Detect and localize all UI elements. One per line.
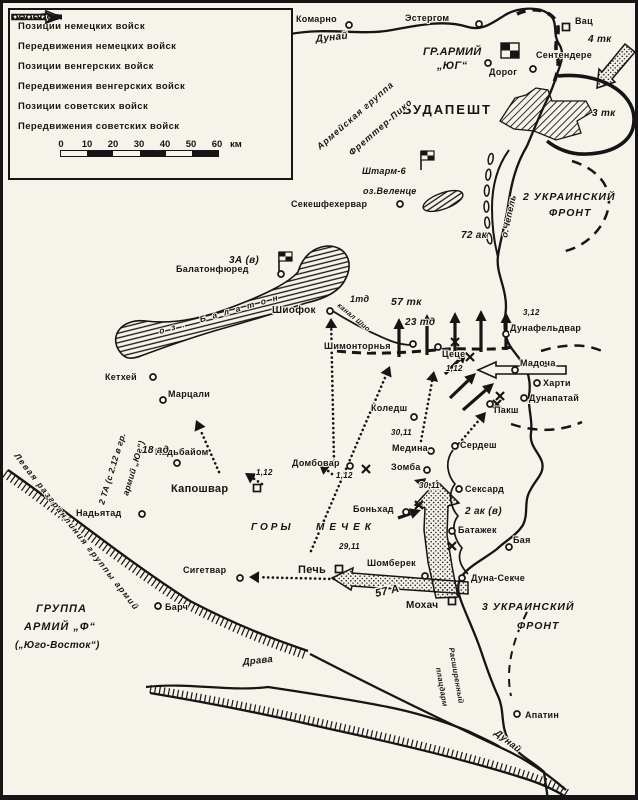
drava-boundary-band-tick bbox=[164, 687, 165, 695]
town-marker bbox=[410, 341, 416, 347]
soviet-movement-arrow bbox=[327, 470, 332, 474]
army-group-boundary-band-tick bbox=[36, 494, 41, 501]
army-group-boundary-band-tick bbox=[136, 568, 141, 575]
map-label: 57 тк bbox=[391, 296, 422, 308]
army-group-boundary-band-tick bbox=[294, 647, 297, 655]
soviet-movement-arrowhead bbox=[381, 366, 392, 378]
german-movement-arrowhead bbox=[394, 318, 405, 329]
drava-boundary-band-tick bbox=[200, 694, 201, 702]
scale-tick: 40 bbox=[152, 139, 178, 150]
drava-boundary-band-tick bbox=[308, 716, 310, 724]
town-marker bbox=[456, 486, 462, 492]
town-label: Апатин bbox=[525, 710, 559, 720]
army-group-boundary-band-tick bbox=[10, 475, 15, 482]
army-group-boundary-band-tick bbox=[33, 491, 38, 498]
town-marker bbox=[449, 528, 455, 534]
drava-boundary-band-tick bbox=[222, 698, 224, 706]
army-group-boundary-band-tick bbox=[224, 620, 228, 628]
german-movement-arrowhead bbox=[476, 310, 487, 321]
town-label: Шиофок bbox=[272, 304, 317, 316]
map-label: ФРОНТ bbox=[549, 207, 592, 219]
army-group-boundary-band-tick bbox=[241, 627, 245, 635]
army-group-boundary-band-tick bbox=[125, 560, 130, 567]
town-marker bbox=[346, 22, 352, 28]
town-marker bbox=[160, 397, 166, 403]
drava-boundary-band-tick bbox=[218, 697, 220, 705]
drava-boundary-band-tick bbox=[375, 731, 377, 739]
army-group-boundary-band-tick bbox=[7, 473, 12, 480]
army-group-boundary-band-tick bbox=[140, 571, 145, 578]
legend-label: Передвижения советских войск bbox=[18, 121, 179, 132]
soviet-position-pill bbox=[485, 169, 491, 181]
drava-boundary-band-tick bbox=[491, 761, 493, 769]
map-legend: Позиции немецких войск Передвижения неме… bbox=[8, 8, 293, 180]
hq-flag-icon-shtarm6 bbox=[428, 156, 435, 161]
drava-boundary-band-tick bbox=[321, 719, 323, 727]
town-marker bbox=[459, 575, 465, 581]
legend-label: Позиции советских войск bbox=[18, 101, 148, 112]
army-group-boundary-band-tick bbox=[254, 632, 257, 640]
army-group-boundary-band-tick bbox=[21, 483, 26, 490]
map-label: 1,12 bbox=[256, 468, 273, 477]
german-movement-arrowhead bbox=[409, 508, 421, 518]
army-group-boundary-band-tick bbox=[276, 641, 279, 649]
town-marker bbox=[254, 485, 261, 492]
army-group-boundary-band-tick bbox=[159, 584, 164, 591]
army-group-boundary-band-tick bbox=[25, 486, 30, 493]
army-group-boundary-band-tick bbox=[220, 618, 224, 626]
drava-boundary-band-tick bbox=[250, 704, 252, 712]
map-label: плацдарм bbox=[434, 667, 450, 708]
soviet-movement-arrowhead bbox=[249, 571, 259, 583]
drava-boundary-band-tick bbox=[281, 710, 283, 718]
drava-boundary-band-tick bbox=[357, 727, 359, 735]
german-movement-arrowhead bbox=[450, 312, 461, 323]
drava-boundary-band-tick bbox=[460, 752, 462, 760]
town-label: Шимонторнья bbox=[324, 341, 391, 351]
army-group-boundary-band-tick bbox=[95, 538, 100, 545]
map-label: 1,12 bbox=[336, 471, 353, 480]
drava-boundary-band-tick bbox=[526, 771, 529, 779]
drava-boundary-band-tick bbox=[204, 695, 205, 703]
legend-label: Передвижения венгерских войск bbox=[18, 81, 185, 92]
soviet-movement-arrow bbox=[259, 577, 334, 579]
army-group-boundary-band-tick bbox=[148, 576, 153, 583]
budapest-city-area bbox=[500, 88, 592, 140]
town-label: Шомберек bbox=[367, 558, 416, 568]
drava-boundary-band-tick bbox=[335, 722, 337, 730]
army-group-boundary-band-tick bbox=[29, 489, 34, 496]
town-marker bbox=[397, 201, 403, 207]
drava-boundary-band-tick bbox=[416, 741, 418, 749]
town-label: Дунапатай bbox=[529, 393, 579, 403]
town-marker bbox=[428, 448, 434, 454]
soviet-position-pill bbox=[484, 201, 489, 212]
scale-tick: 30 bbox=[126, 139, 152, 150]
drava-boundary-band-tick bbox=[411, 740, 413, 748]
hq-flag-icon-shtarm6 bbox=[421, 151, 428, 156]
drava-boundary-band-tick bbox=[173, 689, 174, 697]
map-label: 3 тк bbox=[592, 108, 616, 119]
map-label: ФРОНТ bbox=[517, 620, 560, 632]
town-marker bbox=[411, 414, 417, 420]
drava-boundary-band-tick bbox=[438, 746, 440, 754]
drava-boundary-band-tick bbox=[366, 729, 368, 737]
town-label: Капошвар bbox=[171, 483, 228, 495]
drava-boundary-band-tick bbox=[393, 735, 395, 743]
army-group-boundary-band-tick bbox=[203, 610, 207, 618]
army-group-boundary-band-tick bbox=[106, 547, 111, 554]
town-marker bbox=[452, 443, 458, 449]
scale-tick: 10 bbox=[74, 139, 100, 150]
town-label: Кетхей bbox=[105, 372, 137, 382]
town-marker bbox=[237, 575, 243, 581]
drava-boundary-band-tick bbox=[290, 712, 292, 720]
town-label: Мадоча bbox=[520, 358, 556, 368]
front-dashed-arc bbox=[541, 346, 604, 353]
army-group-boundary-band-tick bbox=[289, 645, 292, 653]
map-label: 29,11 bbox=[338, 542, 360, 551]
drava-boundary-band-tick bbox=[326, 720, 328, 728]
army-group-boundary-band-tick bbox=[216, 616, 220, 624]
town-label: Боньхад bbox=[353, 504, 394, 514]
scale-tick: 50 bbox=[178, 139, 204, 150]
scale-tick-labels: 0 10 20 30 40 50 60 км bbox=[48, 139, 260, 150]
drava-boundary-band-tick bbox=[429, 744, 431, 752]
army-group-boundary-band-tick bbox=[298, 649, 301, 657]
army-group-boundary-band-tick bbox=[174, 594, 179, 602]
drava-boundary-band-tick bbox=[299, 714, 301, 722]
scale-tick: 60 bbox=[204, 139, 230, 150]
town-marker bbox=[150, 374, 156, 380]
town-label: Коледш bbox=[371, 403, 407, 413]
drava-boundary-band-tick bbox=[240, 702, 242, 710]
drava-boundary-band-tick bbox=[535, 775, 538, 782]
map-label: оз.Веленце bbox=[363, 186, 417, 196]
army-group-boundary-band-tick bbox=[99, 541, 104, 548]
army-group-boundary-band-tick bbox=[267, 638, 270, 646]
drava-boundary-band-tick bbox=[442, 747, 444, 755]
army-group-boundary-band-tick bbox=[117, 555, 122, 562]
army-group-boundary-band-tick bbox=[167, 589, 172, 596]
map-page: КомарноЭстергомВацСентендереДорогСекешфе… bbox=[0, 0, 638, 800]
map-label: 3,12 bbox=[523, 308, 540, 317]
army-group-boundary-band-tick bbox=[212, 614, 216, 622]
drava-boundary-band-tick bbox=[500, 763, 502, 771]
town-label: Цеце bbox=[442, 349, 465, 359]
drava-boundary-band-tick bbox=[522, 770, 524, 778]
legend-label: Позиции венгерских войск bbox=[18, 61, 154, 72]
drava-boundary-band-tick bbox=[398, 736, 400, 744]
drava-boundary-band-tick bbox=[548, 780, 551, 787]
hungarian-front-danube-bend bbox=[517, 10, 558, 85]
army-group-boundary-band-tick bbox=[195, 606, 199, 614]
town-label: Дунафельдвар bbox=[510, 323, 581, 333]
map-label: Армейская группа bbox=[314, 79, 396, 152]
drava-boundary-band-tick bbox=[236, 701, 238, 709]
drava-boundary-band-tick bbox=[186, 691, 187, 699]
soviet-position-pill bbox=[487, 153, 494, 165]
drava-boundary-band-tick bbox=[389, 734, 391, 742]
map-label: 3А (в) bbox=[229, 255, 259, 266]
drava-boundary-band-tick bbox=[482, 758, 484, 766]
town-label: Секешфехервар bbox=[291, 199, 367, 209]
german-movement-arrow bbox=[463, 390, 486, 410]
army-group-boundary-band-tick bbox=[129, 563, 134, 570]
drava-boundary-band-tick bbox=[487, 759, 489, 767]
army-group-boundary-band-tick bbox=[155, 581, 160, 588]
town-marker bbox=[534, 380, 540, 386]
town-marker bbox=[435, 344, 441, 350]
town-label: Домбовар bbox=[292, 458, 340, 468]
town-label: Эстергом bbox=[405, 13, 449, 23]
drava-boundary-band-tick bbox=[478, 757, 480, 765]
town-marker bbox=[347, 463, 353, 469]
army-group-boundary-band-tick bbox=[272, 639, 275, 647]
map-scale-bar: 0 10 20 30 40 50 60 км bbox=[18, 139, 285, 157]
drava-boundary-band-tick bbox=[384, 733, 386, 741]
map-label: 3 УКРАИНСКИЙ bbox=[482, 600, 575, 613]
drava-boundary-band-tick bbox=[213, 696, 214, 704]
drava-boundary-band-tick bbox=[456, 751, 458, 759]
map-label: 30,11 bbox=[419, 481, 440, 490]
soviet-position-pill bbox=[484, 217, 490, 228]
drava-boundary-band-tick bbox=[353, 726, 355, 734]
drava-boundary-band-tick bbox=[518, 769, 520, 777]
town-marker bbox=[422, 573, 428, 579]
army-group-boundary-band-tick bbox=[229, 622, 233, 630]
hq-flag-icon-3a bbox=[286, 257, 293, 262]
town-label: Марцали bbox=[168, 389, 210, 399]
drava-boundary-band-tick bbox=[513, 767, 515, 775]
drava-boundary-band-tick bbox=[303, 715, 305, 723]
drava-boundary-band-tick bbox=[263, 706, 265, 714]
map-label: канал Шио bbox=[336, 302, 372, 333]
drava-boundary-band-tick bbox=[433, 745, 435, 753]
legend-row-german-movements: Передвижения немецких войск bbox=[18, 36, 285, 56]
army-group-boundary-band-tick bbox=[144, 573, 149, 580]
legend-row-soviet-movements: Передвижения советских войск bbox=[18, 116, 285, 136]
town-marker bbox=[563, 24, 570, 31]
map-label: Фреттер-Пико bbox=[347, 97, 415, 158]
scale-tick: 0 bbox=[48, 139, 74, 150]
town-marker bbox=[403, 509, 409, 515]
army-group-boundary-band-tick bbox=[237, 625, 241, 633]
town-marker bbox=[506, 544, 512, 550]
map-label: 1тд bbox=[350, 294, 369, 304]
town-marker bbox=[476, 21, 482, 27]
map-label: о.Чепель bbox=[499, 194, 518, 238]
soviet-movement-arrow bbox=[253, 478, 262, 484]
drava-boundary-band-tick bbox=[469, 754, 471, 762]
town-label: Комарно bbox=[296, 14, 337, 24]
drava-boundary-band-tick bbox=[168, 688, 169, 696]
army-group-boundary-band-tick bbox=[191, 604, 195, 612]
drava-boundary-band-tick bbox=[159, 687, 160, 695]
drava-boundary-band-tick bbox=[496, 762, 498, 770]
drava-boundary-band-tick bbox=[191, 692, 192, 700]
town-label: Барч bbox=[165, 602, 188, 612]
drava-boundary-band-tick bbox=[339, 723, 341, 731]
map-label: 2 ак (в) bbox=[464, 506, 502, 517]
town-marker bbox=[487, 401, 493, 407]
map-label: ГР.АРМИЙ bbox=[423, 45, 482, 58]
town-label: Мохач bbox=[406, 600, 438, 611]
town-marker bbox=[327, 308, 333, 314]
map-label: Левая разгранлиния группы армий bbox=[12, 450, 142, 612]
army-group-boundary-band-tick bbox=[285, 644, 288, 652]
drava-boundary-band-tick bbox=[272, 708, 274, 716]
town-marker bbox=[503, 331, 509, 337]
town-marker bbox=[174, 460, 180, 466]
army-group-boundary-band-tick bbox=[302, 650, 305, 659]
army-group-boundary-band-tick bbox=[199, 608, 203, 616]
town-marker bbox=[278, 271, 284, 277]
scale-bar-segments bbox=[60, 150, 219, 157]
drava-boundary-band-tick bbox=[231, 700, 233, 708]
town-label: Вац bbox=[575, 16, 593, 26]
drava-boundary-band-tick bbox=[556, 784, 560, 791]
drava-boundary-band-tick bbox=[402, 737, 404, 745]
german-movement-arrowhead bbox=[501, 312, 512, 323]
map-label: ГОРЫ bbox=[251, 522, 293, 533]
map-label: ГРУППА bbox=[36, 603, 87, 615]
drava-boundary-band-tick bbox=[531, 773, 534, 781]
drava-boundary-band-tick bbox=[425, 743, 427, 751]
drava-boundary-band-tick bbox=[195, 693, 196, 701]
map-label: 18 ад bbox=[142, 445, 169, 456]
town-label: Дуна-Секче bbox=[471, 573, 525, 583]
map-label: АРМИЙ „Ф“ bbox=[23, 620, 96, 633]
drava-boundary-band-tick bbox=[177, 690, 178, 698]
map-label: („Юго-Восток“) bbox=[15, 640, 100, 651]
drava-boundary-band-tick bbox=[451, 750, 453, 758]
drava-boundary-band-tick bbox=[348, 725, 350, 733]
drava-boundary-band-tick bbox=[277, 709, 279, 717]
scale-unit: км bbox=[230, 139, 250, 150]
army-group-boundary-band-tick bbox=[14, 478, 19, 485]
town-label: Дорог bbox=[489, 67, 517, 77]
drava-boundary-band-tick bbox=[504, 765, 506, 773]
map-label: Расширенный bbox=[447, 647, 466, 705]
town-label: Сексард bbox=[465, 484, 504, 494]
town-marker bbox=[514, 711, 520, 717]
front-dashed-arc bbox=[511, 422, 582, 430]
german-movement-arrow bbox=[450, 381, 468, 398]
soviet-movement-arrowhead bbox=[426, 371, 438, 382]
lake-velence bbox=[421, 186, 466, 215]
town-label: Надьятад bbox=[76, 508, 122, 518]
hq-flag-icon-3a bbox=[279, 252, 286, 257]
soviet-movement-arrow bbox=[421, 381, 432, 441]
army-group-boundary-band-tick bbox=[151, 579, 156, 586]
army-group-boundary-band-tick bbox=[263, 636, 266, 644]
hq-icon-army-group-south bbox=[501, 43, 510, 51]
drava-boundary-band-tick bbox=[330, 721, 332, 729]
army-group-boundary-band-tick bbox=[163, 586, 168, 593]
town-marker bbox=[155, 603, 161, 609]
map-label: Штарм-6 bbox=[362, 166, 407, 176]
army-group-boundary-band-tick bbox=[103, 544, 108, 551]
army-group-boundary-band-tick bbox=[171, 592, 176, 599]
town-marker bbox=[336, 566, 343, 573]
legend-row-hungarian-movements: Передвижения венгерских войск bbox=[18, 76, 285, 96]
legend-label: Передвижения немецких войск bbox=[18, 41, 176, 52]
map-label: „ЮГ“ bbox=[436, 60, 468, 72]
drava-boundary-band-tick bbox=[254, 705, 256, 713]
town-label: Батажек bbox=[458, 525, 497, 535]
army-group-boundary-band-tick bbox=[3, 470, 8, 477]
army-group-boundary-band-tick bbox=[259, 634, 262, 642]
drava-boundary-band-tick bbox=[447, 749, 449, 757]
scale-tick: 20 bbox=[100, 139, 126, 150]
army-group-boundary-band-tick bbox=[208, 612, 212, 620]
drava-boundary-band-tick bbox=[362, 728, 364, 736]
legend-row-soviet-positions: Позиции советских войск bbox=[18, 96, 285, 116]
army-group-boundary-band-tick bbox=[114, 552, 119, 559]
town-marker bbox=[512, 367, 518, 373]
drava-boundary-band-tick bbox=[420, 742, 422, 750]
map-label: 4 тк bbox=[587, 34, 612, 45]
drava-boundary-band-tick bbox=[182, 691, 183, 699]
soviet-arrow-northeast bbox=[597, 44, 635, 88]
map-label: Драва bbox=[241, 654, 273, 668]
drava-boundary-band-tick bbox=[407, 739, 409, 747]
drava-boundary-band-tick bbox=[286, 711, 288, 719]
town-label: Зомба bbox=[391, 462, 421, 472]
drava-boundary-band-tick bbox=[371, 730, 373, 738]
town-label: Сердеш bbox=[460, 440, 497, 450]
map-label: Дунай bbox=[314, 31, 348, 45]
drava-boundary-band-tick bbox=[344, 724, 346, 732]
town-marker bbox=[485, 60, 491, 66]
drava-boundary-band-tick bbox=[380, 732, 382, 740]
drava-boundary-band-tick bbox=[552, 782, 556, 789]
hq-icon-army-group-south bbox=[510, 51, 519, 59]
map-label: БУДАПЕШТ bbox=[402, 102, 492, 117]
town-label: Харти bbox=[543, 378, 571, 388]
army-group-boundary-band-tick bbox=[132, 565, 137, 572]
drava-boundary-band-tick bbox=[227, 699, 229, 707]
soviet-movement-arrowhead bbox=[325, 318, 337, 328]
town-marker bbox=[424, 467, 430, 473]
town-label: Медина bbox=[392, 443, 429, 453]
soviet-movement-arrowhead bbox=[195, 420, 206, 432]
army-group-boundary-band-tick bbox=[246, 629, 249, 637]
soviet-movement-arrow-icon bbox=[10, 10, 62, 26]
drava-boundary-band-tick bbox=[509, 766, 511, 774]
drava-boundary-band-tick bbox=[209, 696, 210, 704]
drava-boundary-band-tick bbox=[268, 707, 270, 715]
drava-boundary-band-tick bbox=[465, 753, 467, 761]
town-label: Сентендере bbox=[536, 50, 592, 60]
town-marker bbox=[521, 395, 527, 401]
army-group-boundary-band-tick bbox=[110, 549, 115, 556]
drava-boundary-band-tick bbox=[295, 713, 297, 721]
army-group-boundary-band-tick bbox=[18, 481, 23, 488]
drava-boundary-band-tick bbox=[245, 703, 247, 711]
map-label: 23 тд bbox=[404, 317, 435, 328]
town-marker bbox=[449, 598, 456, 605]
drava-boundary-band-tick bbox=[259, 705, 261, 713]
drava-boundary-band-tick bbox=[317, 718, 319, 726]
map-label: 2 УКРАИНСКИЙ bbox=[522, 190, 616, 203]
army-group-boundary-band-tick bbox=[233, 623, 237, 631]
army-group-boundary-band-tick bbox=[280, 642, 283, 650]
legend-row-hungarian-positions: Позиции венгерских войск bbox=[18, 56, 285, 76]
map-label: 72 ак bbox=[461, 230, 488, 241]
town-label: Бая bbox=[513, 535, 531, 545]
